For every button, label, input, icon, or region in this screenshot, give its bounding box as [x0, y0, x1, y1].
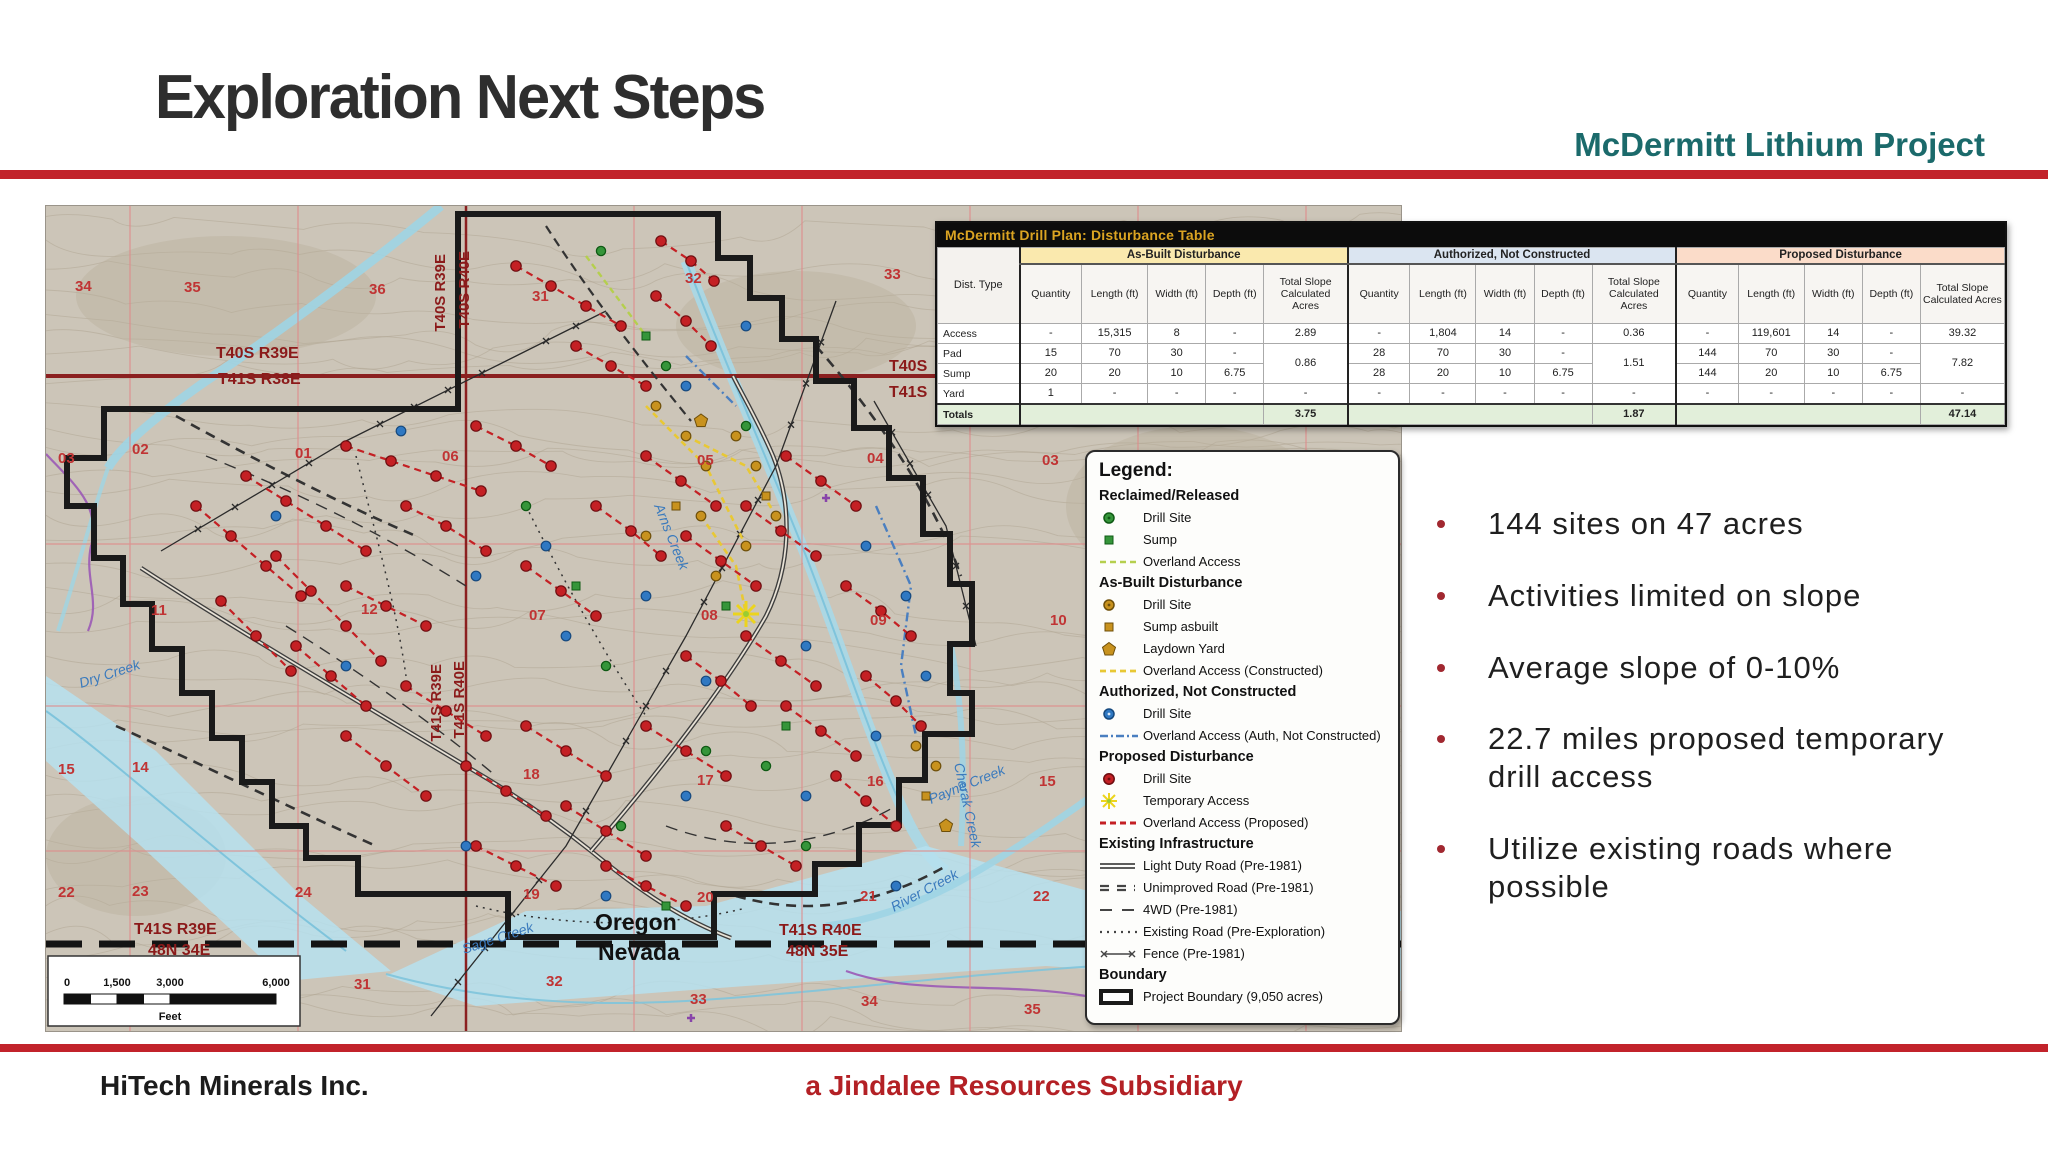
table-cell: - — [1738, 384, 1804, 405]
yellow-star-icon — [1099, 793, 1143, 809]
table-cell: 20 — [1020, 364, 1082, 384]
legend-section-heading: Boundary — [1099, 965, 1388, 986]
table-cell: - — [1862, 344, 1920, 364]
table-cell: - — [1148, 384, 1206, 405]
disturbance-table-title: McDermitt Drill Plan: Disturbance Table — [937, 223, 2005, 247]
table-cell: - — [1020, 324, 1082, 344]
table-cell: - — [1348, 324, 1410, 344]
table-subcolumn-header: Total Slope Calculated Acres — [1920, 264, 2004, 324]
legend-item: Overland Access (Constructed) — [1099, 660, 1388, 682]
table-cell: 119,601 — [1738, 324, 1804, 344]
map-section-label: 23 — [132, 883, 149, 900]
map-township-label: T40S R39E — [216, 345, 299, 362]
table-cell: 6.75 — [1206, 364, 1264, 384]
map-section-label: 04 — [867, 450, 884, 467]
map-section-label: 35 — [1024, 1001, 1041, 1018]
table-cell: - — [1348, 384, 1410, 405]
table-row: Pad157030-0.86287030-1.511447030-7.82 — [938, 344, 2005, 364]
double-line-icon — [1099, 858, 1143, 874]
table-total-cell: 7.82 — [1920, 344, 2004, 384]
table-row-header: Dist. Type — [938, 248, 1020, 324]
green-sump-icon — [1099, 532, 1143, 548]
page-title: Exploration Next Steps — [155, 62, 764, 133]
legend-item-label: 4WD (Pre-1981) — [1143, 899, 1238, 921]
legend-item-label: Overland Access (Constructed) — [1143, 660, 1323, 682]
map-section-label: 01 — [295, 445, 312, 462]
legend-item: Sump asbuilt — [1099, 616, 1388, 638]
map-section-label: 03 — [1042, 452, 1059, 469]
legend-item-label: Light Duty Road (Pre-1981) — [1143, 855, 1302, 877]
table-subcolumn-header: Quantity — [1676, 264, 1738, 324]
dotted-icon — [1099, 924, 1143, 940]
table-cell: - — [1862, 384, 1920, 405]
table-cell: - — [1206, 344, 1264, 364]
map-section-label: 14 — [132, 759, 149, 776]
table-row: Access-15,3158-2.89-1,80414-0.36-119,601… — [938, 324, 2005, 344]
table-total-cell: 0.36 — [1592, 324, 1676, 344]
table-cell: - — [1862, 324, 1920, 344]
table-cell: 144 — [1676, 344, 1738, 364]
map-section-label: 15 — [1039, 773, 1056, 790]
scale-tick-label: 3,000 — [156, 977, 184, 989]
table-subcolumn-header: Total Slope Calculated Acres — [1592, 264, 1676, 324]
bullet-dot-icon — [1437, 845, 1445, 853]
table-total-cell: 39.32 — [1920, 324, 2004, 344]
map-section-label: 15 — [58, 761, 75, 778]
legend-item-label: Fence (Pre-1981) — [1143, 943, 1245, 965]
bullet-text: 144 sites on 47 acres — [1488, 505, 1804, 543]
map-township-label-vertical: T41S R39E — [428, 664, 445, 742]
table-cell: 20 — [1082, 364, 1148, 384]
table-total-cell: - — [1264, 384, 1348, 405]
table-cell: 14 — [1804, 324, 1862, 344]
scale-tick-label: 0 — [64, 977, 70, 989]
bullet-item: 144 sites on 47 acres — [1437, 505, 1997, 543]
map-section-label: 22 — [1033, 888, 1050, 905]
table-cell: - — [1534, 384, 1592, 405]
map-section-label: 06 — [442, 448, 459, 465]
legend-item: Laydown Yard — [1099, 638, 1388, 660]
map-township-label-vertical: T40S R39E — [432, 254, 449, 332]
table-total-cell: 2.89 — [1264, 324, 1348, 344]
green-drill-site-icon — [1099, 510, 1143, 526]
table-subcolumn-header: Width (ft) — [1804, 264, 1862, 324]
bullet-text: Activities limited on slope — [1488, 577, 1861, 615]
legend-item: Drill Site — [1099, 768, 1388, 790]
table-subcolumn-header: Length (ft) — [1082, 264, 1148, 324]
bullet-text: 22.7 miles proposed temporary drill acce… — [1488, 720, 1997, 796]
table-cell: 10 — [1804, 364, 1862, 384]
table-cell: - — [1206, 324, 1264, 344]
legend-items: Reclaimed/ReleasedDrill SiteSumpOverland… — [1099, 486, 1388, 1008]
table-subcolumn-header: Depth (ft) — [1206, 264, 1264, 324]
accent-rule-top — [0, 170, 2048, 179]
legend-section-heading: Existing Infrastructure — [1099, 834, 1388, 855]
map-township-label: T41S R38E — [218, 371, 301, 388]
legend-item: 4WD (Pre-1981) — [1099, 899, 1388, 921]
table-cell: 30 — [1476, 344, 1534, 364]
map-section-label: 18 — [523, 766, 540, 783]
map-section-label: 09 — [870, 612, 887, 629]
legend-item-label: Drill Site — [1143, 594, 1191, 616]
legend-section-heading: As-Built Disturbance — [1099, 573, 1388, 594]
table-cell: 15,315 — [1082, 324, 1148, 344]
table-grand-total: 3.75 — [1264, 404, 1348, 425]
map-legend: Legend: Reclaimed/ReleasedDrill SiteSump… — [1085, 450, 1400, 1025]
table-subcolumn-header: Quantity — [1348, 264, 1410, 324]
table-grand-total: 1.87 — [1592, 404, 1676, 425]
legend-item: Project Boundary (9,050 acres) — [1099, 986, 1388, 1008]
bullet-dot-icon — [1437, 664, 1445, 672]
table-cell: 28 — [1348, 344, 1410, 364]
legend-section-heading: Authorized, Not Constructed — [1099, 682, 1388, 703]
legend-item-label: Sump asbuilt — [1143, 616, 1218, 638]
disturbance-table-panel: McDermitt Drill Plan: Disturbance Table … — [935, 221, 2007, 427]
disturbance-table: Dist. TypeAs-Built DisturbanceAuthorized… — [937, 247, 2005, 425]
bullet-item: 22.7 miles proposed temporary drill acce… — [1437, 720, 1997, 796]
legend-item: Light Duty Road (Pre-1981) — [1099, 855, 1388, 877]
table-cell: - — [1534, 344, 1592, 364]
bullet-dot-icon — [1437, 520, 1445, 528]
map-state-label: Oregon — [595, 909, 677, 935]
table-cell: - — [1410, 384, 1476, 405]
boundary-box-icon — [1099, 989, 1143, 1005]
legend-item: Drill Site — [1099, 594, 1388, 616]
map-section-label: 34 — [861, 993, 878, 1010]
legend-item-label: Drill Site — [1143, 768, 1191, 790]
table-cell: - — [1804, 384, 1862, 405]
legend-item: Drill Site — [1099, 507, 1388, 529]
map-township-label-vertical: T41S R40E — [451, 661, 468, 739]
map-township-label: T40S — [889, 358, 928, 375]
scale-bar: 01,5003,0006,000Feet — [48, 956, 300, 1026]
table-cell: 30 — [1148, 344, 1206, 364]
bullet-item: Average slope of 0-10% — [1437, 649, 1997, 687]
map-township-label: T41S R40E — [779, 922, 862, 939]
legend-item-label: Overland Access (Proposed) — [1143, 812, 1308, 834]
bullet-dot-icon — [1437, 592, 1445, 600]
legend-item-label: Drill Site — [1143, 507, 1191, 529]
project-subtitle: McDermitt Lithium Project — [1574, 126, 1985, 164]
map-section-label: 05 — [697, 452, 714, 469]
table-total-cell: - — [1592, 384, 1676, 405]
double-dash-icon — [1099, 880, 1143, 896]
table-total-cell: 1.51 — [1592, 344, 1676, 384]
map-section-label: 19 — [523, 886, 540, 903]
map-section-label: 24 — [295, 884, 312, 901]
map-township-label: 48N 35E — [786, 943, 849, 960]
table-cell: 20 — [1738, 364, 1804, 384]
legend-item-label: Unimproved Road (Pre-1981) — [1143, 877, 1314, 899]
table-cell: 70 — [1738, 344, 1804, 364]
table-cell: 30 — [1804, 344, 1862, 364]
table-subcolumn-header: Quantity — [1020, 264, 1082, 324]
map-township-label: T41S — [889, 384, 928, 401]
table-cell: - — [1476, 384, 1534, 405]
bullet-dot-icon — [1437, 735, 1445, 743]
table-subcolumn-header: Width (ft) — [1476, 264, 1534, 324]
table-cell: 14 — [1476, 324, 1534, 344]
table-cell: 1 — [1020, 384, 1082, 405]
fence-icon — [1099, 946, 1143, 962]
legend-item: Temporary Access — [1099, 790, 1388, 812]
legend-item: Fence (Pre-1981) — [1099, 943, 1388, 965]
table-cell: - — [1676, 324, 1738, 344]
bullet-text: Average slope of 0-10% — [1488, 649, 1840, 687]
legend-item-label: Overland Access — [1143, 551, 1241, 573]
map-township-label: T41S R39E — [134, 921, 217, 938]
legend-title: Legend: — [1099, 460, 1388, 482]
legend-item: Drill Site — [1099, 703, 1388, 725]
map-section-label: 20 — [697, 889, 714, 906]
gold-drill-site-icon — [1099, 597, 1143, 613]
table-group-header: Proposed Disturbance — [1676, 248, 2004, 265]
table-cell: - — [1206, 384, 1264, 405]
map-section-label: 10 — [1050, 612, 1067, 629]
map-section-label: 35 — [184, 279, 201, 296]
map-township-label-vertical: T40S R40E — [456, 251, 473, 329]
long-dash-icon — [1099, 902, 1143, 918]
table-cell: 1,804 — [1410, 324, 1476, 344]
map-section-label: 16 — [867, 773, 884, 790]
gold-sump-icon — [1099, 619, 1143, 635]
red-drill-site-icon — [1099, 771, 1143, 787]
bullet-text: Utilize existing roads where possible — [1488, 830, 1997, 906]
yellow-dash-icon — [1099, 663, 1143, 679]
legend-item-label: Existing Road (Pre-Exploration) — [1143, 921, 1325, 943]
table-subcolumn-header: Length (ft) — [1410, 264, 1476, 324]
map-section-label: 07 — [529, 607, 546, 624]
map-section-label: 17 — [697, 772, 714, 789]
table-cell: - — [1534, 324, 1592, 344]
table-cell: 144 — [1676, 364, 1738, 384]
legend-item: Overland Access — [1099, 551, 1388, 573]
map-section-label: 32 — [546, 973, 563, 990]
table-cell: 70 — [1082, 344, 1148, 364]
scale-tick-label: 1,500 — [103, 977, 131, 989]
blue-drill-site-icon — [1099, 706, 1143, 722]
map-section-label: 31 — [354, 976, 371, 993]
table-totals-row: Totals3.751.8747.14 — [938, 404, 2005, 425]
table-subcolumn-header: Total Slope Calculated Acres — [1264, 264, 1348, 324]
scale-unit-label: Feet — [159, 1011, 182, 1023]
legend-section-heading: Reclaimed/Released — [1099, 486, 1388, 507]
bullet-item: Utilize existing roads where possible — [1437, 830, 1997, 906]
legend-item: Overland Access (Auth, Not Constructed) — [1099, 725, 1388, 747]
legend-item-label: Overland Access (Auth, Not Constructed) — [1143, 725, 1381, 747]
table-group-header: As-Built Disturbance — [1020, 248, 1348, 265]
key-points-list: 144 sites on 47 acresActivities limited … — [1437, 505, 1997, 940]
legend-item: Overland Access (Proposed) — [1099, 812, 1388, 834]
table-cell: 70 — [1410, 344, 1476, 364]
table-subcolumn-header: Width (ft) — [1148, 264, 1206, 324]
map-section-label: 03 — [58, 450, 75, 467]
accent-rule-bottom — [0, 1044, 2048, 1052]
bullet-item: Activities limited on slope — [1437, 577, 1997, 615]
table-cell: 8 — [1148, 324, 1206, 344]
legend-item-label: Laydown Yard — [1143, 638, 1225, 660]
table-cell: - — [1676, 384, 1738, 405]
blue-dashdot-icon — [1099, 728, 1143, 744]
table-cell: 15 — [1020, 344, 1082, 364]
legend-item-label: Project Boundary (9,050 acres) — [1143, 986, 1323, 1008]
scale-tick-label: 6,000 — [262, 977, 290, 989]
table-subcolumn-header: Length (ft) — [1738, 264, 1804, 324]
table-cell: 6.75 — [1862, 364, 1920, 384]
map-section-label: 33 — [690, 991, 707, 1008]
map-section-label: 02 — [132, 441, 149, 458]
red-dash-icon — [1099, 815, 1143, 831]
map-section-label: 12 — [361, 601, 378, 618]
disturbance-table-grid: Dist. TypeAs-Built DisturbanceAuthorized… — [937, 247, 2005, 425]
map-section-label: 21 — [860, 888, 877, 905]
map-section-label: 33 — [884, 266, 901, 283]
table-group-header: Authorized, Not Constructed — [1348, 248, 1676, 265]
map-section-label: 08 — [701, 607, 718, 624]
legend-item: Sump — [1099, 529, 1388, 551]
table-cell: 10 — [1476, 364, 1534, 384]
table-cell: 28 — [1348, 364, 1410, 384]
map-section-label: 22 — [58, 884, 75, 901]
legend-item: Unimproved Road (Pre-1981) — [1099, 877, 1388, 899]
legend-item-label: Drill Site — [1143, 703, 1191, 725]
table-row: Sump2020106.752820106.7514420106.75 — [938, 364, 2005, 384]
map-state-label: Nevada — [598, 939, 680, 965]
table-cell: - — [1082, 384, 1148, 405]
legend-item: Existing Road (Pre-Exploration) — [1099, 921, 1388, 943]
table-total-cell: 0.86 — [1264, 344, 1348, 384]
subsidiary-note: a Jindalee Resources Subsidiary — [805, 1070, 1242, 1102]
map-section-label: 31 — [532, 288, 549, 305]
legend-item-label: Temporary Access — [1143, 790, 1249, 812]
gold-pentagon-icon — [1099, 641, 1143, 657]
legend-item-label: Sump — [1143, 529, 1177, 551]
map-section-label: 36 — [369, 281, 386, 298]
table-cell: 20 — [1410, 364, 1476, 384]
table-grand-total: 47.14 — [1920, 404, 2004, 425]
legend-section-heading: Proposed Disturbance — [1099, 747, 1388, 768]
table-subcolumn-header: Depth (ft) — [1534, 264, 1592, 324]
table-total-cell: - — [1920, 384, 2004, 405]
table-subcolumn-header: Depth (ft) — [1862, 264, 1920, 324]
table-cell: 6.75 — [1534, 364, 1592, 384]
green-dash-icon — [1099, 554, 1143, 570]
company-name: HiTech Minerals Inc. — [100, 1070, 369, 1102]
map-section-label: 11 — [151, 602, 167, 619]
map-section-label: 34 — [75, 278, 92, 295]
table-row: Yard1-------------- — [938, 384, 2005, 405]
table-cell: 10 — [1148, 364, 1206, 384]
map-section-label: 32 — [685, 270, 702, 287]
